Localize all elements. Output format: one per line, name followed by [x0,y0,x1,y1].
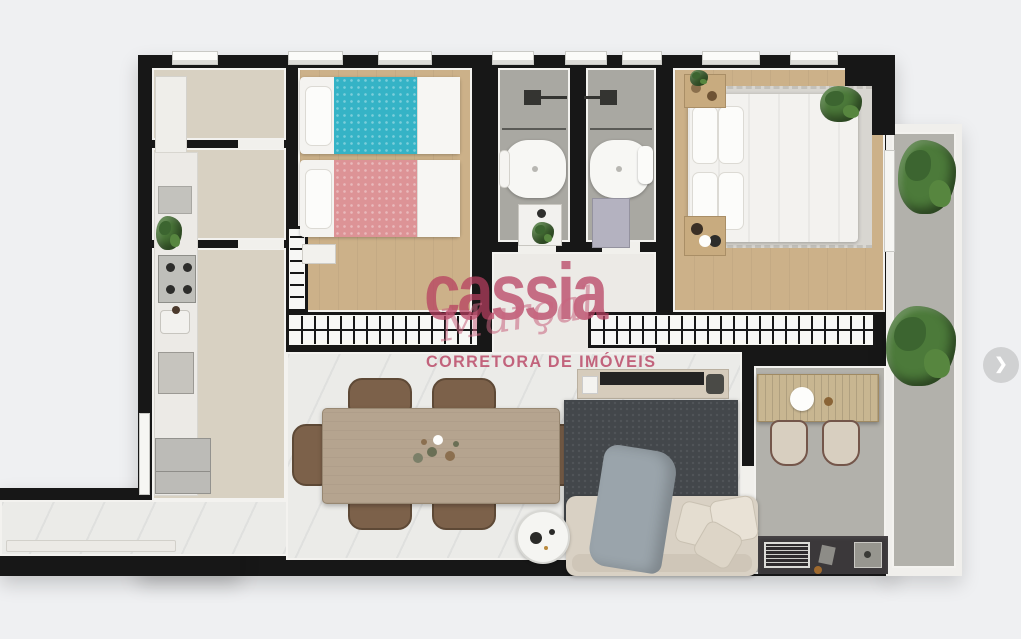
balcony-sink [854,542,882,568]
facade-window [790,51,838,65]
pillow [692,106,718,164]
fridge [155,438,211,494]
table-centerpiece [427,447,437,457]
pink-quilt [334,160,418,237]
facade-window [622,51,662,65]
bar-stool [770,420,808,466]
shower-glass [590,128,652,130]
nightstand-decor [691,223,703,235]
facade-window [492,51,534,65]
tv-console [577,369,729,399]
twin-bed-pink [300,160,460,237]
twin-bed-teal [300,77,460,154]
kitchen-sink [160,310,190,334]
bathtub [504,140,566,198]
bathroom-plant [532,222,554,244]
stove-burners [166,263,175,272]
duvet-fold [417,77,460,154]
duvet-fold [417,160,460,237]
laundry-plant [156,216,182,250]
plate [790,387,814,411]
bbq-counter [758,536,888,574]
nightstand-plant [690,70,708,86]
shower-head [600,90,617,105]
master-window [884,150,895,252]
kitchen-window [139,413,150,495]
terrace-plant [886,306,956,386]
pillow [305,169,332,229]
vanity-faucet [537,209,546,218]
corridor-bench [6,540,176,552]
master-plant [820,86,862,122]
grill [764,542,810,568]
listing-photo-floor-plan: cassia Marçal CORRETORA DE IMÓVEIS ❯ [0,0,1021,639]
bedroom-2-side-window [286,226,308,312]
stove [158,255,196,303]
shower-head [524,90,541,105]
bar-decor [824,397,833,406]
pillow [718,106,744,164]
living-window-right [588,312,876,348]
towel [638,146,653,184]
chevron-right-icon: ❯ [994,357,1007,373]
napkin [818,545,835,566]
kitchen-cabinet [158,352,194,394]
dining-table [322,408,560,504]
carousel-next-button[interactable]: ❯ [983,347,1019,383]
nightstand-tray [699,235,711,247]
pillow [305,86,332,146]
console-decor [706,374,724,394]
washing-machine [158,186,192,214]
bedroom-2-desk [302,244,336,264]
magazine-stack [582,376,598,394]
side-table [516,510,570,564]
tv [600,372,704,385]
sink-drain [864,551,871,558]
nightstand [684,216,726,256]
laundry-door [238,140,284,149]
shower-arm [584,96,602,99]
bar-stool [822,420,860,466]
fridge-divider [156,471,210,472]
shower-mat [592,198,630,248]
terrace-plant [898,140,956,214]
kitchen-faucet [172,306,180,314]
watermark-tagline: CORRETORA DE IMÓVEIS [426,352,656,372]
teal-quilt [334,77,418,154]
kitchen-door [238,240,284,249]
tub-drain [616,166,622,172]
counter-decor [814,566,822,574]
toilet [499,150,510,188]
tub-drain [532,166,538,172]
bar-table [757,374,879,422]
facade-window [702,51,760,65]
side-table-decor [530,532,542,544]
shower-arm [541,96,567,99]
facade-window [172,51,218,65]
facade-window [288,51,343,65]
facade-window [378,51,432,65]
shower-glass [502,128,566,130]
facade-window [565,51,607,65]
